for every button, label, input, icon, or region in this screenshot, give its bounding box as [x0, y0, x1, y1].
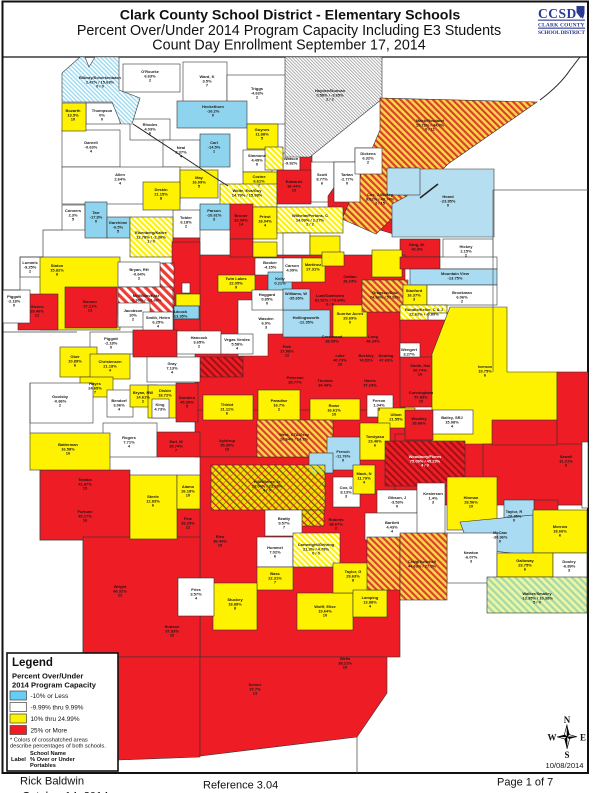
svg-text:10/08/2014: 10/08/2014	[545, 761, 583, 770]
svg-text:Peterson28.77%: Peterson28.77%	[286, 375, 304, 384]
svg-text:Carson4.09%: Carson4.09%	[285, 263, 299, 272]
svg-text:W: W	[548, 733, 557, 743]
svg-text:Wolfe, Eva/Guy14.79% / 15.98%: Wolfe, Eva/Guy14.79% / 15.98%	[232, 188, 263, 197]
svg-text:CLARK COUNTY: CLARK COUNTY	[538, 22, 585, 28]
svg-text:Harris37.24%: Harris37.24%	[363, 378, 377, 387]
svg-text:Woolley28.66%: Woolley28.66%	[411, 416, 427, 425]
svg-text:describe percentages of both s: describe percentages of both schools.	[10, 744, 106, 750]
svg-text:Thomas34.49%: Thomas34.49%	[317, 378, 333, 387]
svg-text:Beckley74.52%: Beckley74.52%	[358, 353, 374, 362]
svg-text:West, CTA/Gray26.84% / 14.7%: West, CTA/Gray26.84% / 14.7%	[279, 432, 310, 441]
svg-text:Booker-4.15%: Booker-4.15%	[263, 260, 277, 269]
svg-text:Reference 3.04: Reference 3.04	[203, 780, 278, 792]
svg-text:2014 Program Capacity: 2014 Program Capacity	[12, 681, 97, 690]
svg-text:Clark County School District -: Clark County School District - Elementar…	[120, 8, 461, 24]
svg-text:Kelly0.21%: Kelly0.21%	[274, 276, 286, 285]
svg-text:Portables: Portables	[30, 763, 56, 769]
svg-text:Watson-9.92%: Watson-9.92%	[284, 156, 299, 165]
svg-text:Cahlan26.24%: Cahlan26.24%	[343, 274, 357, 283]
svg-text:25% or More: 25% or More	[31, 728, 68, 735]
svg-text:Adcock-13.35%: Adcock-13.35%	[173, 309, 188, 318]
svg-text:Count Day Enrollment September: Count Day Enrollment September 17, 2014	[152, 38, 425, 54]
svg-text:Martinez27.31%: Martinez27.31%	[305, 262, 321, 271]
svg-text:King, M.42.3%: King, M.42.3%	[409, 242, 425, 251]
svg-text:SCHOOL DISTRICT: SCHOOL DISTRICT	[538, 30, 585, 36]
svg-text:Rick Baldwin: Rick Baldwin	[20, 776, 84, 788]
svg-text:10% thru 24.99%: 10% thru 24.99%	[31, 716, 80, 723]
svg-text:Label: Label	[11, 757, 26, 763]
svg-text:Diskin18.72%: Diskin18.72%	[158, 388, 172, 397]
svg-text:Dearing47.63%: Dearing47.63%	[379, 353, 394, 362]
svg-text:S: S	[564, 750, 569, 760]
svg-text:E: E	[580, 733, 586, 743]
svg-text:Ullom21.55%: Ullom21.55%	[389, 412, 403, 421]
svg-text:Craig/Twitchell44.63% / 27.0%: Craig/Twitchell44.63% / 27.0%	[408, 559, 437, 568]
svg-text:Gragson/Diaz74.34% / 57.92%: Gragson/Diaz74.34% / 57.92%	[370, 290, 401, 299]
svg-text:King4.73%: King4.73%	[154, 402, 166, 411]
svg-text:Page 1 of 7: Page 1 of 7	[497, 777, 553, 789]
svg-text:CCSD: CCSD	[538, 6, 577, 21]
svg-text:McMillan/Katz-1.36% / -13.66%: McMillan/Katz-1.36% / -13.66%	[131, 293, 162, 302]
svg-text:-10% or Less: -10% or Less	[31, 693, 69, 700]
svg-text:N: N	[564, 715, 571, 725]
svg-text:Percent Over/Under: Percent Over/Under	[12, 672, 83, 681]
svg-text:Rundle/Keller, C & J22.62% / -: Rundle/Keller, C & J22.62% / -0.89%	[405, 307, 443, 316]
svg-text:-9.99% thru 9.99%: -9.99% thru 9.99%	[31, 705, 84, 712]
svg-text:Legend: Legend	[12, 657, 53, 669]
